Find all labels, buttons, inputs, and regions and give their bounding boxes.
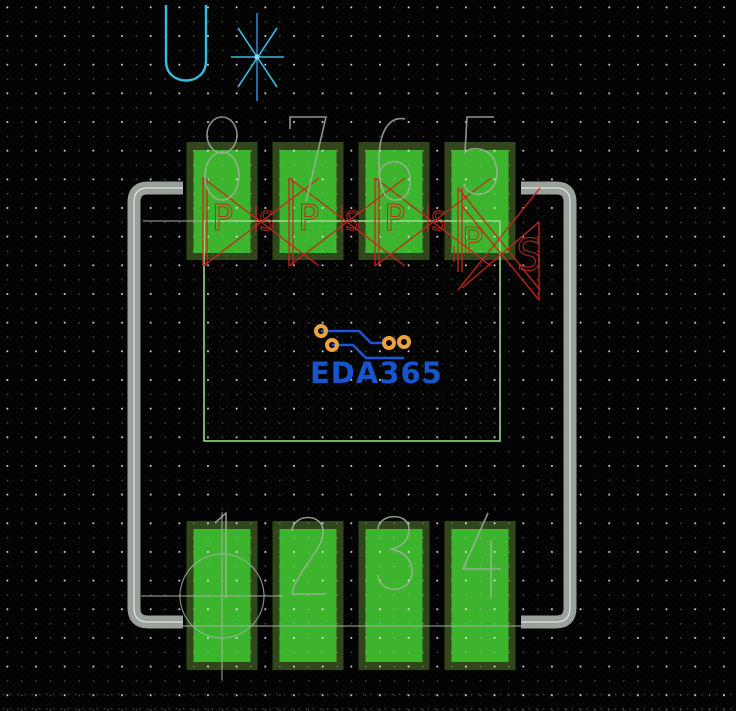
- pcb-editor-canvas[interactable]: PPPPSSSS EDA365: [0, 0, 736, 711]
- drc-letter-gap-1[interactable]: S: [259, 207, 275, 237]
- drc-letter-pad-1[interactable]: P: [212, 198, 234, 239]
- drc-letter-pad-2[interactable]: P: [298, 198, 320, 239]
- origin-center-dot: [254, 54, 259, 59]
- drawing-extents-band: [0, 684, 736, 711]
- drc-letter-side[interactable]: S: [516, 230, 543, 281]
- drc-letter-pad-4[interactable]: P: [462, 221, 484, 262]
- drc-letter-gap-3[interactable]: S: [431, 207, 447, 237]
- drc-letter-gap-2[interactable]: S: [345, 207, 361, 237]
- pcb-footprint-drawing: PPPPSSSS EDA365: [0, 0, 736, 711]
- drc-letter-pad-3[interactable]: P: [384, 198, 406, 239]
- logo-text: EDA365: [310, 356, 443, 390]
